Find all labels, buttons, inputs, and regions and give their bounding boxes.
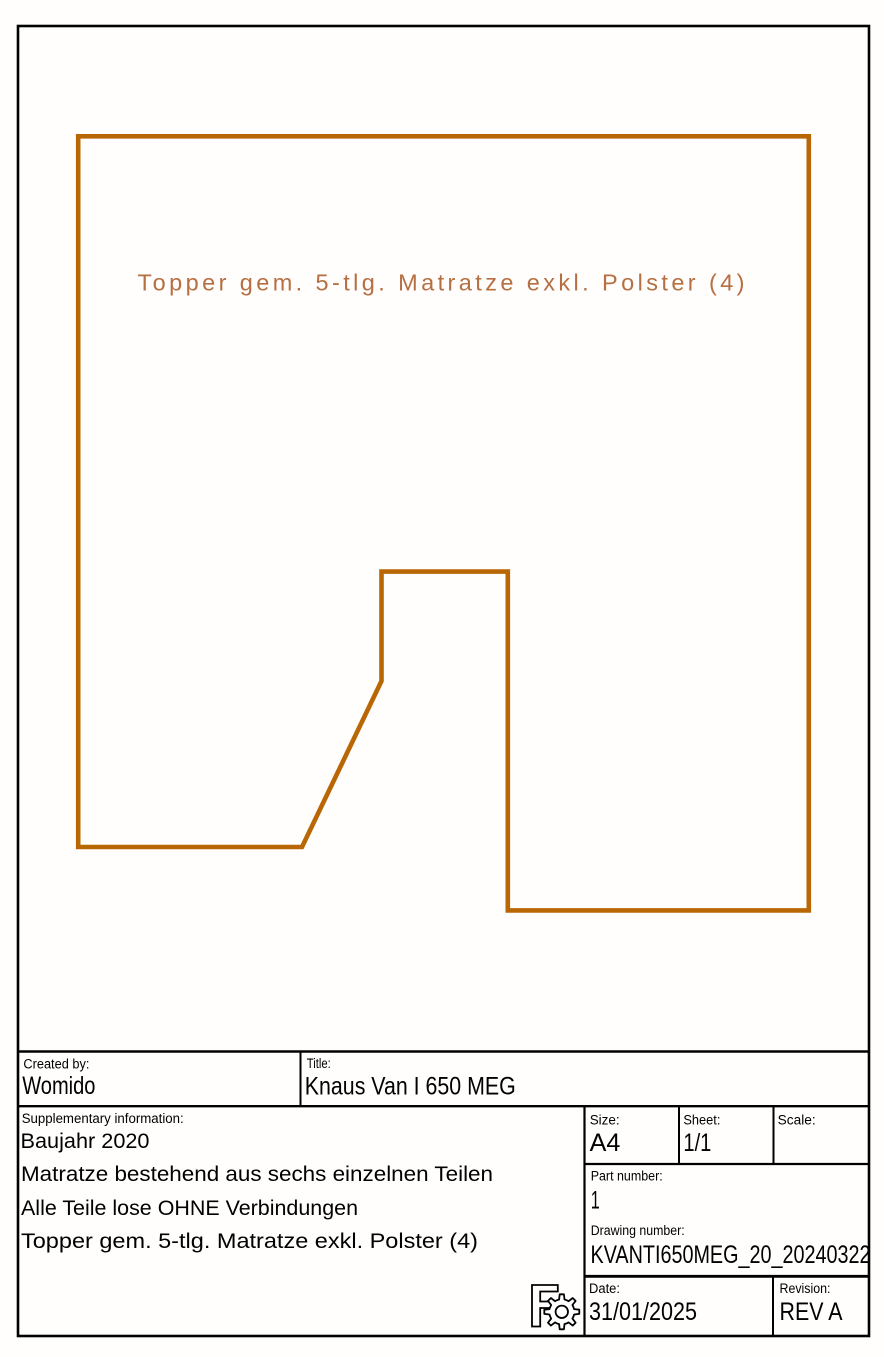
svg-text:Size:: Size: (590, 1113, 620, 1128)
svg-text:31/01/2025: 31/01/2025 (589, 1298, 697, 1326)
svg-text:Matratze bestehend aus sechs e: Matratze bestehend aus sechs einzelnen T… (21, 1162, 493, 1186)
svg-text:Supplementary information:: Supplementary information: (22, 1111, 184, 1126)
svg-text:Scale:: Scale: (778, 1113, 816, 1128)
svg-text:Alle Teile lose OHNE Verbindun: Alle Teile lose OHNE Verbindungen (21, 1196, 358, 1220)
svg-text:Date:: Date: (589, 1281, 620, 1296)
svg-text:Sheet:: Sheet: (683, 1113, 720, 1128)
svg-text:Topper gem. 5-tlg. Matratze ex: Topper gem. 5-tlg. Matratze exkl. Polste… (21, 1229, 478, 1253)
svg-text:Womido: Womido (22, 1072, 95, 1100)
svg-text:1/1: 1/1 (683, 1129, 711, 1157)
svg-text:1: 1 (591, 1187, 600, 1215)
svg-text:Topper gem. 5-tlg. Matratze ex: Topper gem. 5-tlg. Matratze exkl. Polste… (138, 270, 745, 296)
svg-text:KVANTI650MEG_20_20240322: KVANTI650MEG_20_20240322 (591, 1241, 871, 1269)
svg-text:Part number:: Part number: (591, 1169, 663, 1184)
svg-text:Baujahr 2020: Baujahr 2020 (21, 1129, 150, 1153)
svg-text:Title:: Title: (307, 1056, 331, 1071)
svg-text:Created by:: Created by: (23, 1056, 89, 1071)
svg-text:A4: A4 (590, 1129, 621, 1157)
svg-text:Revision:: Revision: (780, 1281, 831, 1296)
svg-text:Knaus Van I 650 MEG: Knaus Van I 650 MEG (305, 1073, 516, 1101)
svg-text:REV A: REV A (780, 1298, 843, 1326)
svg-text:Drawing number:: Drawing number: (591, 1223, 685, 1238)
